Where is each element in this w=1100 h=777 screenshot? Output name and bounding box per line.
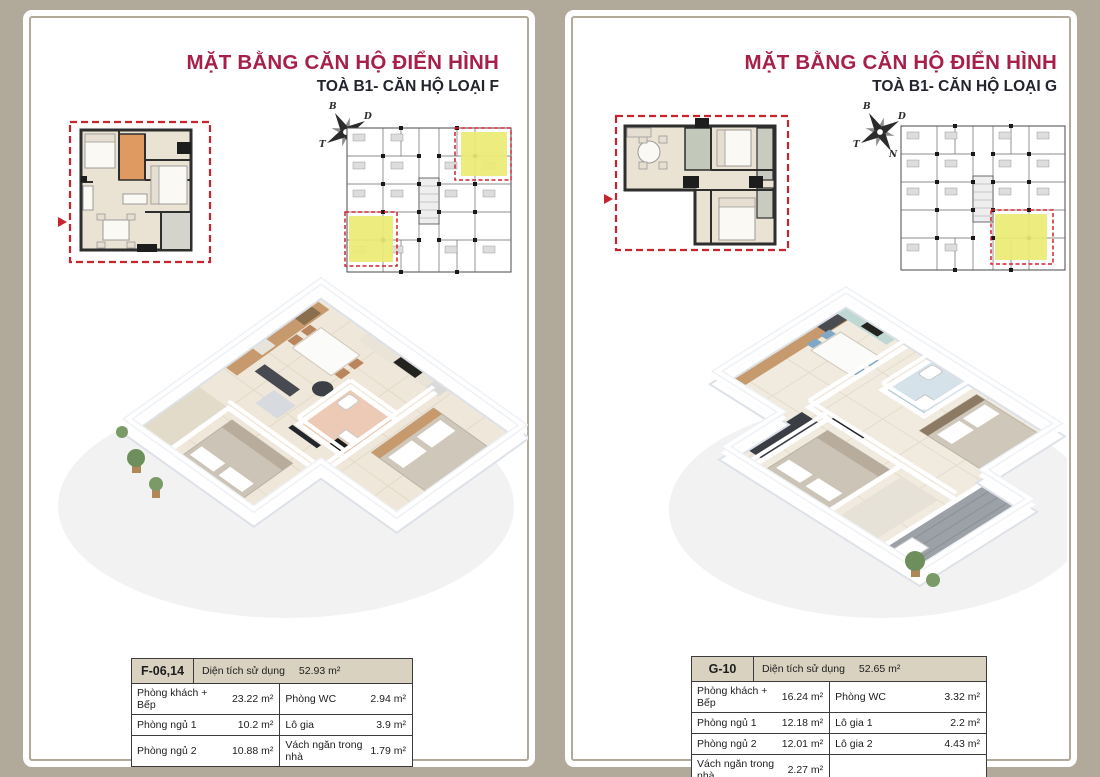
- room-area: 23.22 m²: [232, 693, 273, 705]
- table-row: Phòng ngủ 110.2 m² Lô gia3.9 m²: [132, 714, 412, 735]
- page-subtitle: TOÀ B1- CĂN HỘ LOẠI G: [872, 78, 1057, 96]
- room-label: Phòng ngủ 2: [697, 738, 761, 750]
- compass-north-label: B: [862, 102, 871, 112]
- room-area: 2.94 m²: [370, 693, 406, 705]
- floor-plate-map: [895, 118, 1073, 278]
- unit-plan-thumbnail: [57, 118, 215, 270]
- highlighted-unit-bottom-left: [349, 216, 393, 262]
- apartment-3d-render: [581, 268, 1067, 658]
- spec-table-header: F-06,14 Diện tích sử dụng 52.93 m²: [132, 659, 412, 683]
- brochure-page-type-g: MẶT BẰNG CĂN HỘ ĐIỂN HÌNH TOÀ B1- CĂN HỘ…: [571, 16, 1071, 761]
- area-label: Diện tích sử dụng: [762, 663, 845, 675]
- brochure-page-type-f: MẶT BẰNG CĂN HỘ ĐIỂN HÌNH TOÀ B1- CĂN HỘ…: [29, 16, 529, 761]
- unit-location-arrow-icon: [604, 194, 613, 204]
- room-label: Phòng ngủ 2: [137, 745, 201, 757]
- room-area: 2.27 m²: [788, 764, 824, 776]
- area-value: 52.93 m²: [299, 665, 340, 677]
- room-area: 4.43 m²: [944, 738, 980, 750]
- area-label: Diện tích sử dụng: [202, 665, 285, 677]
- table-row: Vách ngăn trong nhà2.27 m²: [692, 754, 986, 777]
- table-row: Phòng khách + Bếp23.22 m² Phòng WC2.94 m…: [132, 683, 412, 714]
- room-label: Phòng WC: [285, 693, 340, 705]
- compass-north-label: B: [328, 102, 337, 112]
- unit-plan-thumbnail: [603, 110, 793, 260]
- table-row: Phòng ngủ 212.01 m² Lô gia 24.43 m²: [692, 733, 986, 754]
- room-label: Phòng ngủ 1: [137, 719, 201, 731]
- room-area: 2.2 m²: [950, 717, 980, 729]
- room-label: Lô gia 2: [835, 738, 876, 750]
- table-row: Phòng ngủ 210.88 m² Vách ngăn trong nhà1…: [132, 735, 412, 766]
- room-area: 10.2 m²: [238, 719, 274, 731]
- spec-table: G-10 Diện tích sử dụng 52.65 m² Phòng kh…: [691, 656, 987, 777]
- room-label: Phòng WC: [835, 691, 890, 703]
- unit-location-arrow-icon: [58, 217, 67, 227]
- room-label: Phòng khách + Bếp: [697, 685, 782, 709]
- highlighted-unit-top-right: [461, 132, 507, 176]
- room-label: Vách ngăn trong nhà: [285, 739, 370, 763]
- room-area: 16.24 m²: [782, 691, 823, 703]
- room-label: Phòng ngủ 1: [697, 717, 761, 729]
- room-area: 1.79 m²: [370, 745, 406, 757]
- room-area: 12.01 m²: [782, 738, 823, 750]
- spec-table-header: G-10 Diện tích sử dụng 52.65 m²: [692, 657, 986, 681]
- compass-west-label: T: [319, 140, 327, 150]
- room-area: 3.9 m²: [376, 719, 406, 731]
- room-label: Vách ngăn trong nhà: [697, 758, 788, 777]
- page-title: MẶT BẰNG CĂN HỘ ĐIỂN HÌNH: [187, 51, 500, 75]
- page-title: MẶT BẰNG CĂN HỘ ĐIỂN HÌNH: [745, 51, 1058, 75]
- table-row: Phòng ngủ 112.18 m² Lô gia 12.2 m²: [692, 712, 986, 733]
- table-row: Phòng khách + Bếp16.24 m² Phòng WC3.32 m…: [692, 681, 986, 712]
- room-area: 10.88 m²: [232, 745, 273, 757]
- room-label: Lô gia: [285, 719, 318, 731]
- room-label: Lô gia 1: [835, 717, 876, 729]
- floor-plate-map: [341, 120, 519, 280]
- room-area: 3.32 m²: [944, 691, 980, 703]
- apartment-3d-render: [36, 264, 528, 658]
- unit-code: G-10: [692, 657, 754, 681]
- area-value: 52.65 m²: [859, 663, 900, 675]
- room-label: Phòng khách + Bếp: [137, 687, 232, 711]
- spec-table: F-06,14 Diện tích sử dụng 52.93 m² Phòng…: [131, 658, 413, 767]
- page-subtitle: TOÀ B1- CĂN HỘ LOẠI F: [317, 78, 499, 96]
- compass-west-label: T: [853, 140, 861, 150]
- highlighted-unit-bottom-right: [995, 214, 1047, 260]
- unit-code: F-06,14: [132, 659, 194, 683]
- room-area: 12.18 m²: [782, 717, 823, 729]
